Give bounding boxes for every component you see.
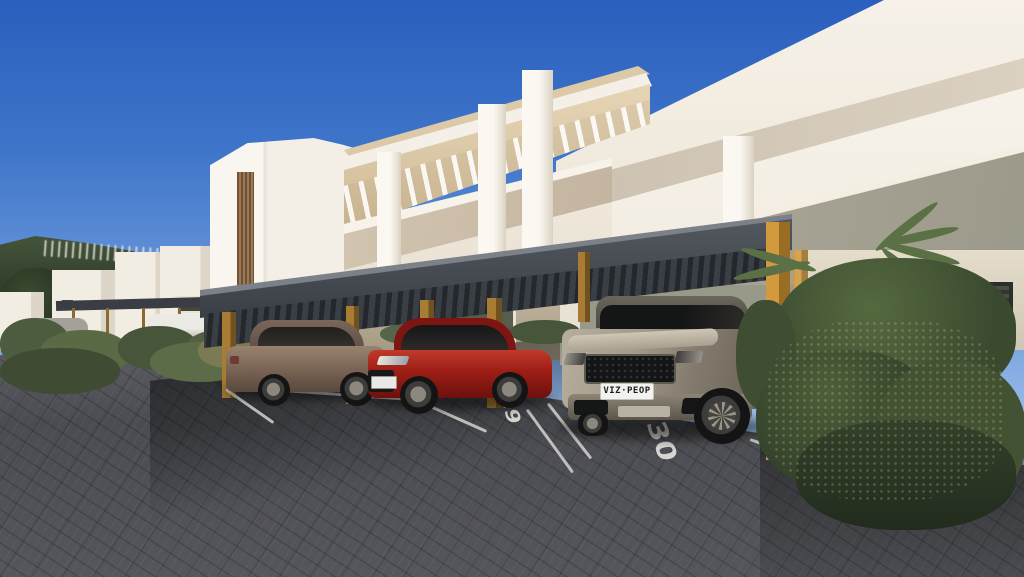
car-wheel <box>492 372 528 408</box>
suv-wheel <box>694 388 750 444</box>
car-license-plate <box>371 376 397 389</box>
car-wheel <box>258 374 290 406</box>
suv-wheel-rim <box>708 402 736 430</box>
suv-skid-plate <box>618 406 670 417</box>
car-wheel <box>400 376 438 414</box>
plant-speckles <box>766 320 1006 500</box>
car-taillight <box>230 356 239 364</box>
suv-license-plate: VIZ·PEOP <box>600 383 654 400</box>
suv-headlight-right <box>675 351 703 363</box>
car-coupe-red <box>368 316 552 408</box>
plant-group <box>756 200 1024 530</box>
architectural-render-scene: 29 30 VIZ·PEOP <box>0 0 1024 577</box>
suv-headlight-left <box>564 353 587 365</box>
suv-wheel <box>578 412 608 436</box>
suv-grille <box>584 354 676 384</box>
shrub <box>0 348 120 394</box>
car-headlight <box>377 356 410 365</box>
car-hatchback-bronze <box>222 318 392 400</box>
